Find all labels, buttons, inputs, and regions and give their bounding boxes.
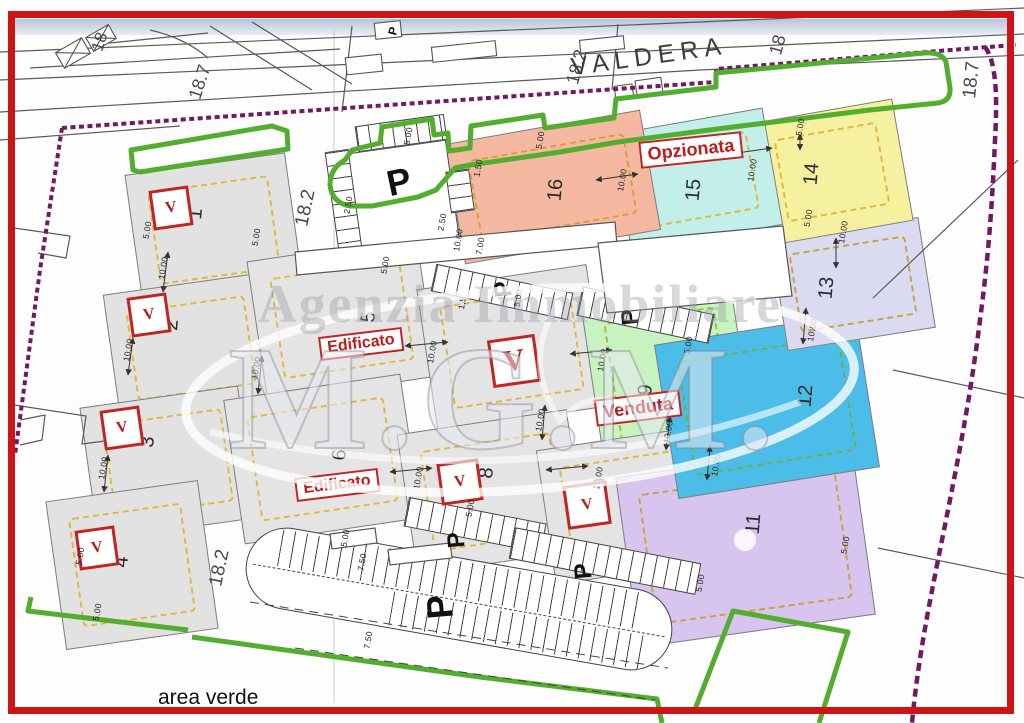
sold-marker-text: V [142,305,156,324]
sold-marker-text: V [164,198,178,217]
lot-number-12: 12 [794,384,819,408]
sold-marker-text: V [501,343,527,380]
lot-number-11: 11 [742,513,767,536]
elevation-label: 18.7 [959,60,985,99]
lot-number-5: 5 [357,310,381,323]
parking-label-strip-3: P [442,531,471,549]
lot-5 [246,236,437,402]
sold-marker-lot-1: V [148,185,193,230]
lot-number-6: 6 [328,448,352,461]
parking-label-strip-2: P [616,308,645,326]
sold-marker-lot-8: V [436,458,483,505]
sold-marker-text: V [580,495,594,514]
lot-number-13: 13 [815,276,840,300]
scan-shade-band [8,19,1014,35]
lot-13-footprint [788,235,917,332]
sold-marker-lot-7: V [487,334,541,388]
lot-number-15: 15 [682,178,707,202]
lot-6 [223,374,422,545]
green-area-label: area verde [158,686,258,710]
lot-14-footprint [773,122,890,223]
sold-marker-lot-3: V [99,405,144,450]
sold-marker-text: V [90,538,104,557]
elevation-label: 18.7 [185,62,216,102]
sold-marker-lot-2: V [126,292,171,337]
elevation-label: 18.2 [205,548,234,589]
lot-11-footprint [638,467,853,625]
street-name: VALDERA [569,32,728,83]
sold-marker-text: V [453,472,467,491]
parking-label-strip-4: P [569,562,598,580]
lot-5-footprint [269,259,415,379]
sold-marker-lot-10: V [562,480,612,530]
elevation-label: 18.2 [291,188,320,229]
sold-marker-text: V [115,418,129,437]
parking-label-long-strip: P [418,593,462,621]
lot-12-footprint [677,336,857,476]
elevation-label: 18 [765,33,790,58]
lot-number-14: 14 [800,162,825,186]
lot-6-footprint [246,396,399,521]
site-plan: 18 18.7 18.2 18.2 18.2 18 18.7 VALDERA a… [0,0,1024,723]
dim-label: 7.50 [362,630,375,649]
lot-number-16: 16 [544,178,569,202]
